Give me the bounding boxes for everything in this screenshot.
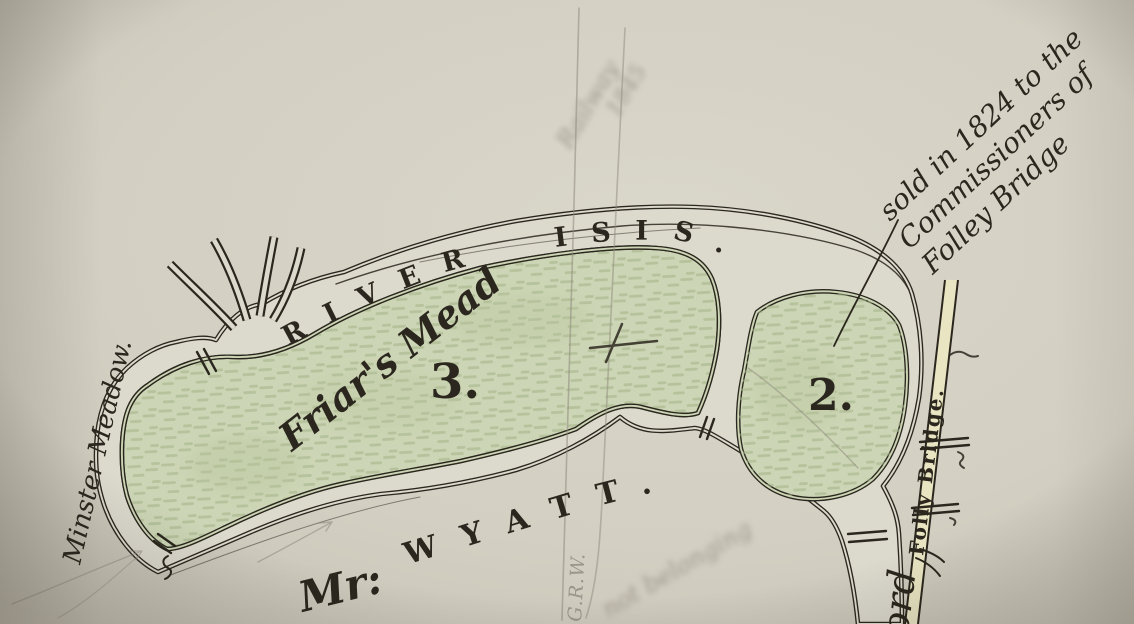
- scanned-map-photo: RIVER ISIS. Friar's Mead 3. 2. Minster M…: [0, 0, 1134, 624]
- parcel-2-number: 2.: [808, 370, 854, 421]
- initials-pencil-note: G.R.W.: [564, 552, 590, 622]
- map-canvas: RIVER ISIS. Friar's Mead 3. 2. Minster M…: [0, 0, 1134, 624]
- ford-label: ford: [871, 567, 925, 624]
- meadow-shade-patch: [190, 437, 300, 493]
- parcel-3-number: 3.: [430, 354, 480, 410]
